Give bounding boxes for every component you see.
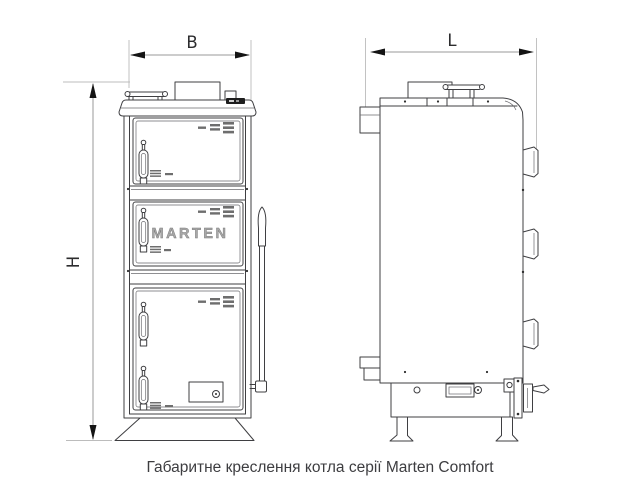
door-shelf [130,186,246,200]
width-label: B [186,33,197,52]
latch-handle [533,385,549,393]
length-label: L [447,31,457,50]
base-skirt [115,418,254,441]
side-skirt [391,383,510,417]
shaker-lever [250,207,267,392]
height-label: H [64,256,83,268]
door-shelf [130,270,246,284]
door-hinge [523,229,538,259]
flue-pipe [175,82,220,101]
side-panel [380,98,523,383]
arrowhead-down [90,425,97,440]
arrowhead-right [519,49,534,56]
air-regulator-panel [189,382,223,402]
thermometer-display [226,98,245,104]
carry-handle-side [443,85,485,99]
leg [390,417,413,441]
middle-door: MARTEN [133,202,243,266]
top-door [133,118,243,184]
flue-collar [360,107,380,133]
arrowhead-left [130,52,145,59]
bottom-door [133,288,243,410]
drawing-page: H B [0,0,640,498]
latch-mechanism [504,378,549,418]
air-slots [150,170,161,177]
arrowhead-left [370,49,385,56]
arrowhead-right [235,52,250,59]
air-slots [150,402,161,409]
door-hinge [523,147,538,177]
technical-drawing: H B [0,0,640,498]
leg [496,417,518,441]
front-view: MARTEN [115,82,267,441]
arrowhead-up [90,83,97,98]
door-hinge [523,319,538,349]
return-pipe [360,357,380,380]
drawing-caption: Габаритне креслення котла серії Marten C… [146,459,494,476]
side-view [360,82,549,441]
dimension-height: H [63,82,130,441]
air-slots [150,246,161,253]
brand-text: MARTEN [151,226,228,242]
